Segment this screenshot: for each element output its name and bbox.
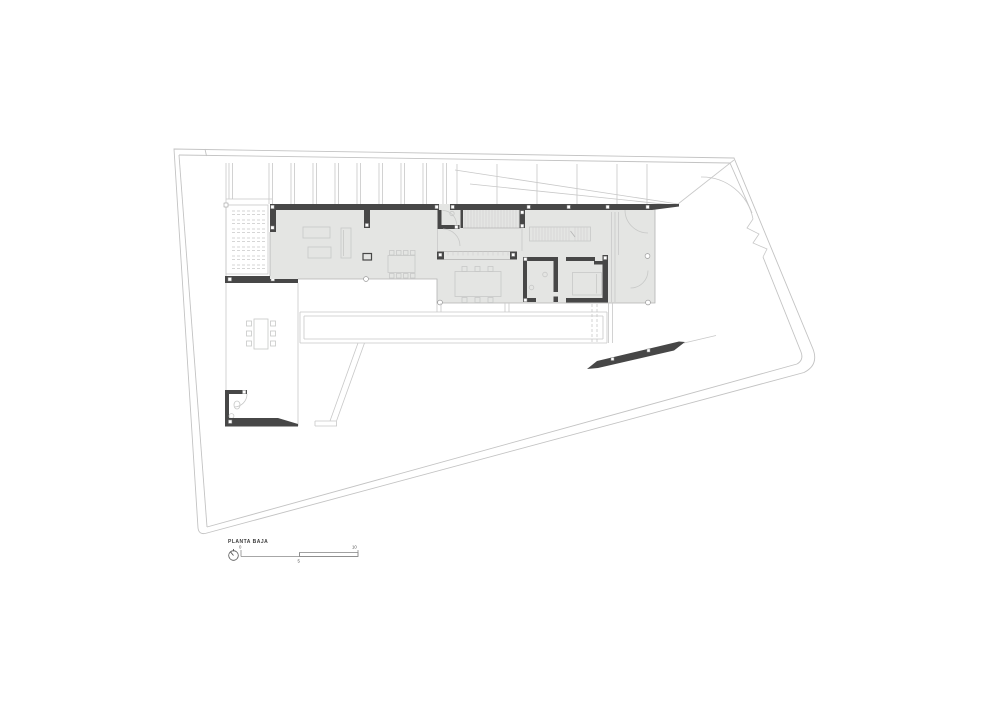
outdoor-dining-table [247,319,276,349]
north-arrow-icon [229,549,239,560]
column [438,300,443,305]
louver-deck [224,203,268,274]
sink [229,414,234,419]
courtyard [225,276,298,427]
entry-gate [701,177,767,257]
scale-label-0: 0 [239,545,242,550]
rear-terrace [300,303,613,426]
main-building [270,204,679,305]
scale-label-5: 5 [298,559,301,564]
column [645,254,650,259]
floor-plan-canvas: PLANTA BAJA 0 5 10 [0,0,1000,706]
column [364,277,369,282]
courtyard-bottom-wall [225,418,298,427]
garden-retaining-wall [587,336,716,370]
floor-plan-svg: PLANTA BAJA 0 5 10 [0,0,1000,706]
title-block: PLANTA BAJA 0 5 10 [228,539,358,564]
scale-label-10: 10 [352,545,357,550]
door-swing-arc [234,394,247,407]
scale-bar: 0 5 10 [239,545,358,564]
toilet [234,401,240,409]
plan-title: PLANTA BAJA [228,539,268,545]
column [646,300,651,305]
garden-bathroom [225,390,298,427]
